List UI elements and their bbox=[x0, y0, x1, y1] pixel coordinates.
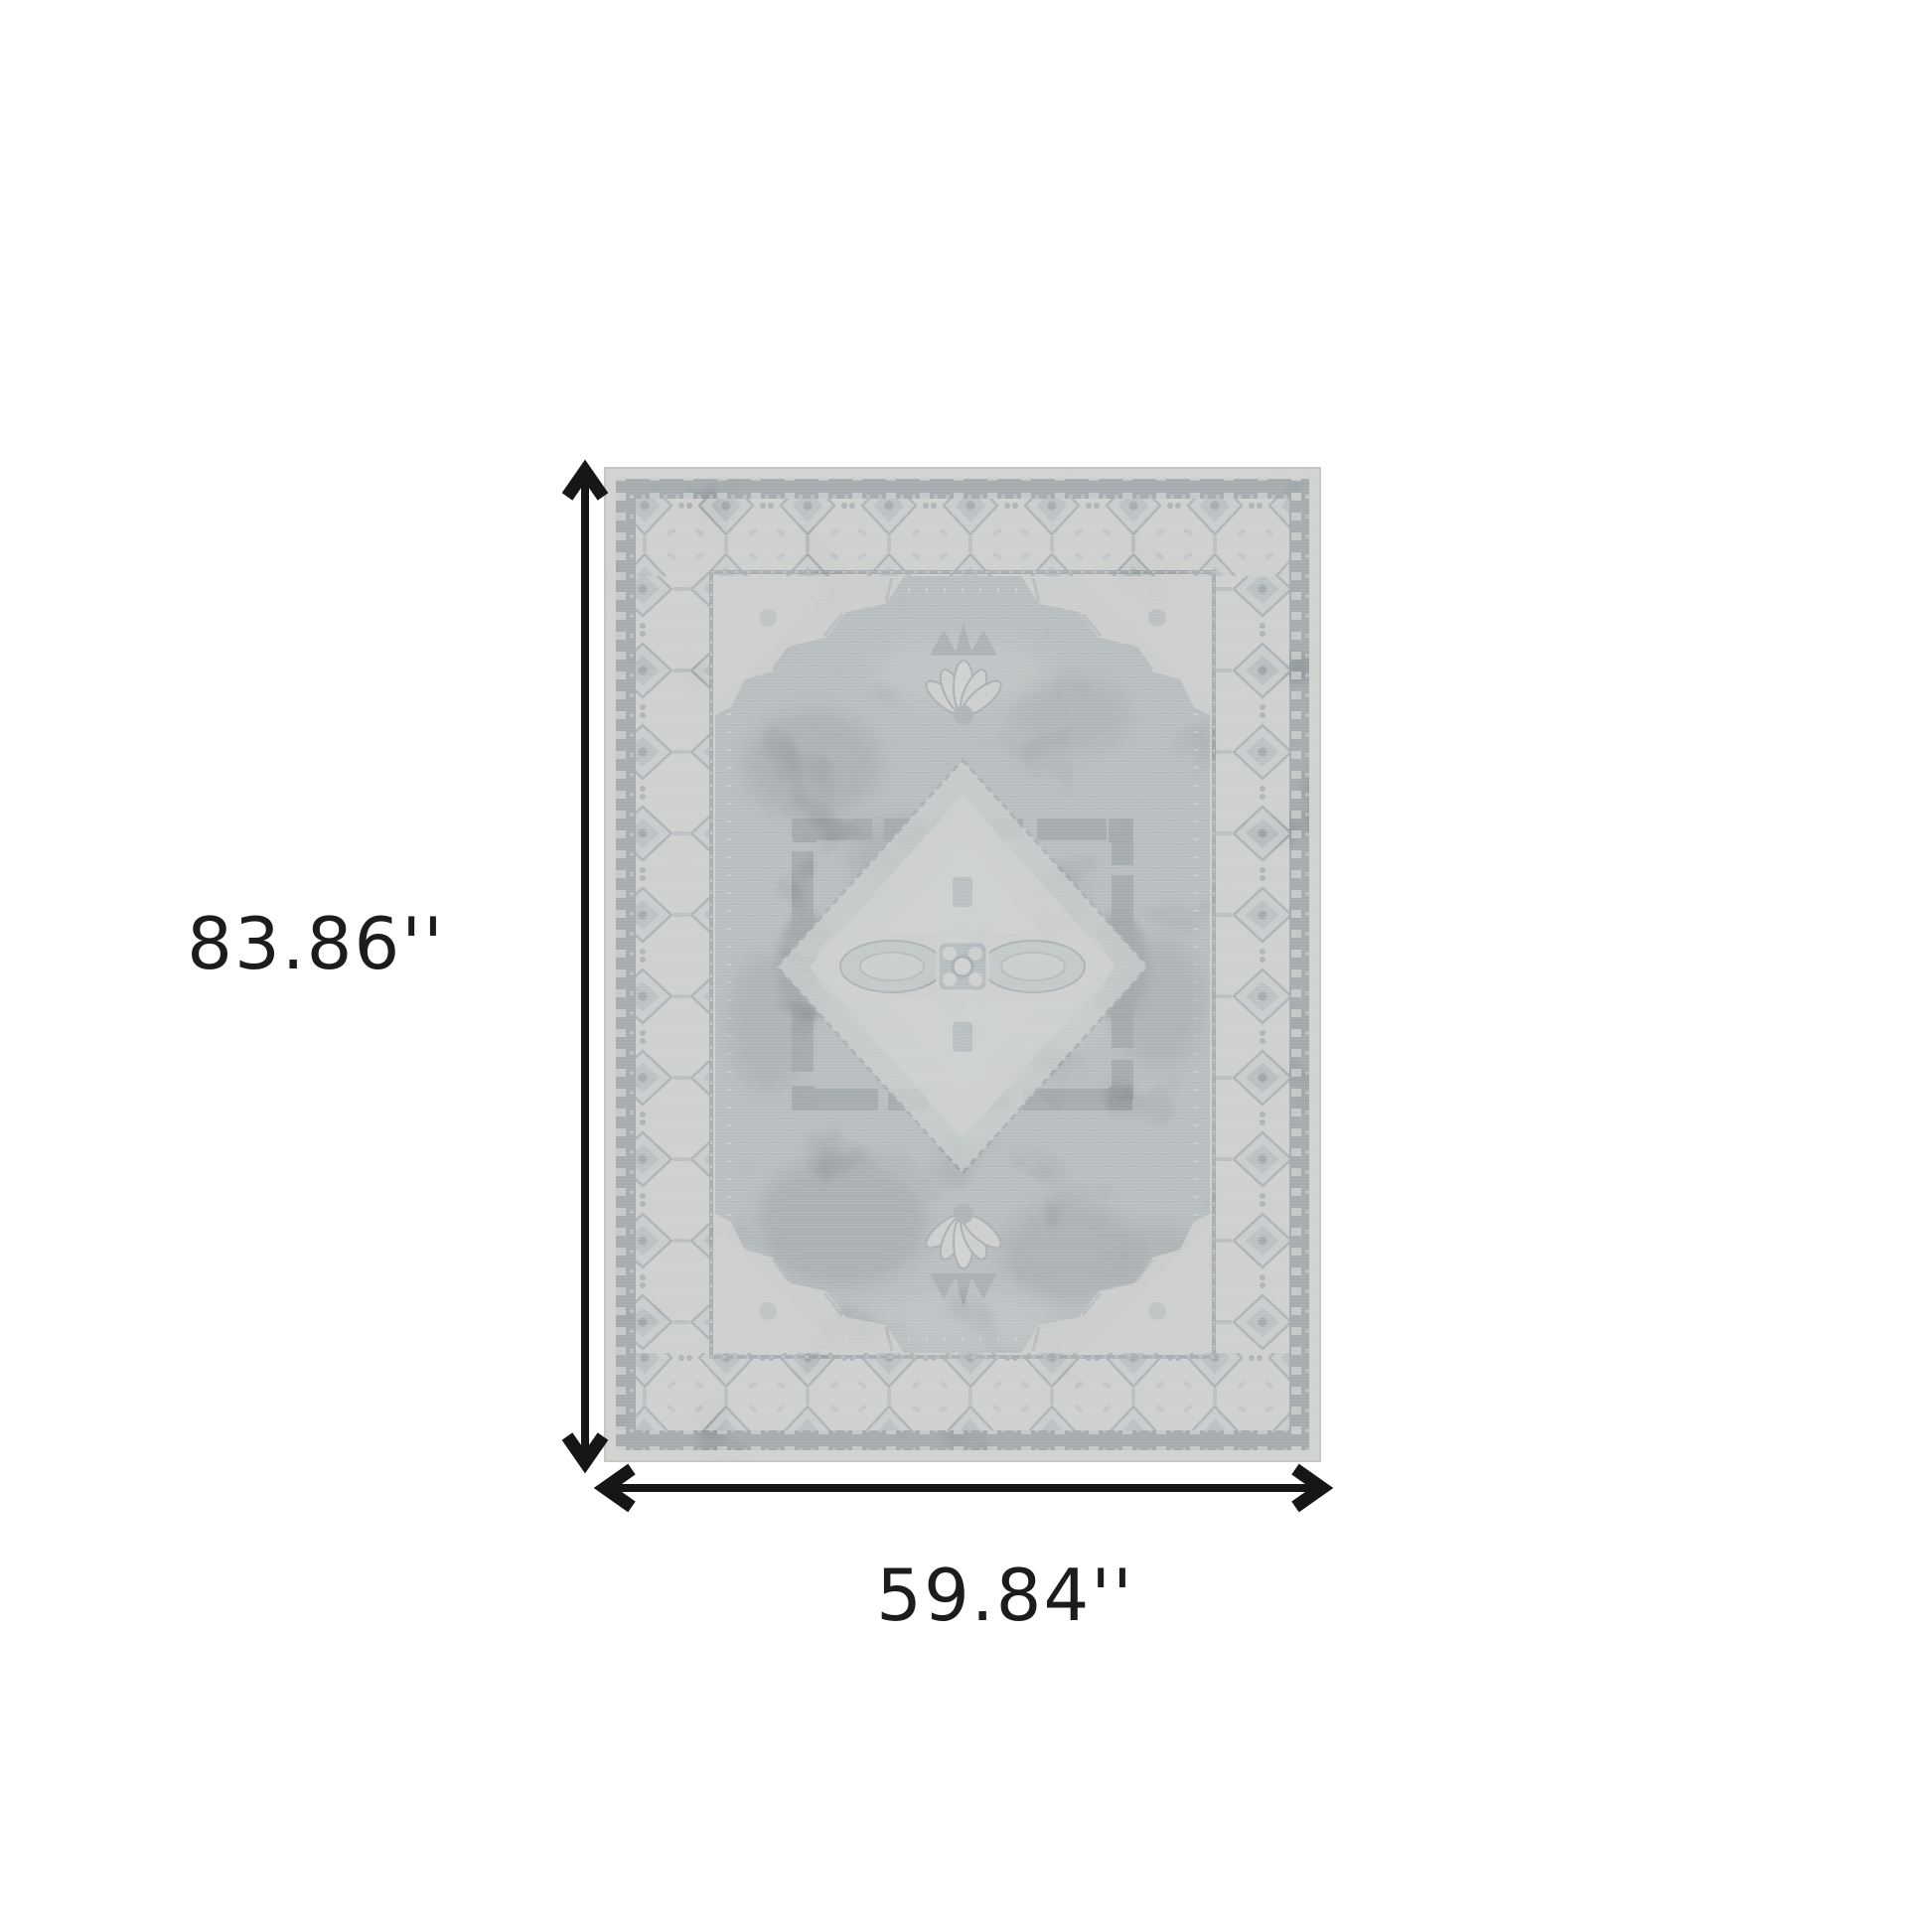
rug-texture bbox=[604, 467, 1321, 1462]
height-arrow bbox=[567, 471, 603, 1462]
width-arrow bbox=[605, 1469, 1322, 1507]
width-label: 59.84'' bbox=[876, 1554, 1134, 1637]
rug-image bbox=[604, 467, 1321, 1462]
arrowhead-left-icon bbox=[605, 1469, 632, 1507]
arrowhead-up-icon bbox=[567, 471, 603, 497]
rug-graphic bbox=[604, 467, 1321, 1462]
product-dimension-diagram: 83.86'' 59.84'' bbox=[0, 0, 1932, 1932]
arrowhead-down-icon bbox=[567, 1436, 603, 1462]
arrowhead-right-icon bbox=[1295, 1469, 1322, 1507]
height-label: 83.86'' bbox=[187, 902, 445, 985]
